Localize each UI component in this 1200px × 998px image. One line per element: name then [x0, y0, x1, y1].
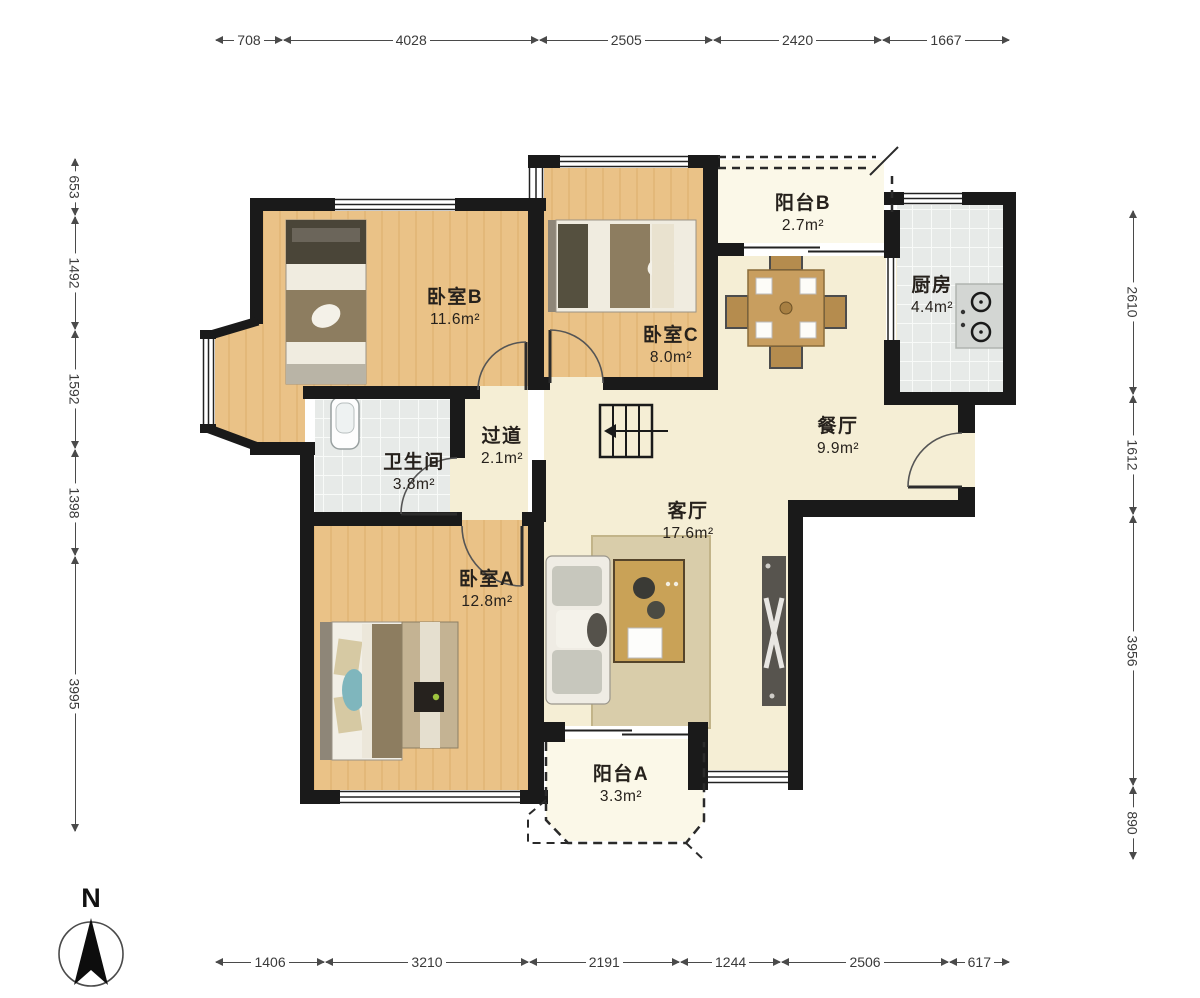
dimension-segment: 1612: [1122, 395, 1144, 515]
room-name: 卧室A: [459, 564, 515, 591]
double-bed-bedroom-a: [320, 622, 402, 760]
dimension-value: 2191: [586, 954, 623, 970]
compass: N: [50, 884, 132, 997]
dimension-value: 1244: [712, 954, 749, 970]
dimension-segment: 3956: [1122, 515, 1144, 787]
dimension-ruler-bottom: 1406 3210 2191 1244 2506 617: [215, 951, 1010, 973]
double-bed-bedroom-c: [548, 220, 696, 312]
dimension-value: 1592: [67, 370, 83, 409]
room-label-bedroom-c: 卧室C 8.0m²: [643, 320, 699, 367]
dimension-value: 1492: [67, 253, 83, 292]
room-name: 卧室B: [427, 282, 483, 309]
room-area: 4.4m²: [911, 299, 953, 317]
room-label-balcony-b: 阳台B 2.7m²: [775, 188, 831, 235]
room-name: 客厅: [662, 496, 713, 523]
window-living-bottom: [708, 770, 788, 784]
dimension-segment: 2191: [529, 951, 680, 973]
room-name: 卫生间: [383, 447, 445, 474]
room-label-balcony-a: 阳台A 3.3m²: [593, 759, 649, 806]
room-name: 过道: [481, 421, 523, 448]
dimension-value: 1398: [67, 483, 83, 522]
dimension-value: 1612: [1125, 435, 1141, 474]
dimension-segment: 708: [215, 29, 283, 51]
floor-plan-canvas: 卧室B 11.6m² 卧室C 8.0m² 阳台B 2.7m² 厨房 4.4m² …: [0, 0, 1200, 998]
room-label-hallway: 过道 2.1m²: [481, 421, 523, 468]
room-label-living: 客厅 17.6m²: [662, 496, 713, 543]
dimension-segment: 890: [1122, 786, 1144, 860]
floor-plan-drawing: [0, 0, 1200, 998]
dimension-segment: 2505: [539, 29, 713, 51]
dimension-value: 3210: [408, 954, 445, 970]
dimension-segment: 2610: [1122, 210, 1144, 395]
window-bedroom-a-bottom: [340, 790, 520, 804]
compass-north-label: N: [50, 884, 132, 912]
room-area: 3.8m²: [383, 476, 445, 494]
dimension-ruler-right: 2610 1612 3956 890: [1122, 210, 1144, 860]
room-area: 2.7m²: [775, 217, 831, 235]
dimension-value: 3995: [67, 674, 83, 713]
room-area: 17.6m²: [662, 525, 713, 543]
compass-icon: [50, 912, 132, 992]
room-area: 11.6m²: [427, 311, 483, 329]
window-corner-jog: [528, 168, 544, 198]
bathroom-sink: [331, 397, 359, 449]
dimension-ruler-top: 708 4028 2505 2420 1667: [215, 29, 1010, 51]
room-name: 厨房: [911, 270, 953, 297]
tv-cabinet: [762, 556, 786, 706]
room-area: 8.0m²: [643, 349, 699, 367]
room-name: 阳台B: [775, 188, 831, 215]
double-bed-bedroom-b: [286, 220, 366, 384]
dimension-value: 890: [1125, 808, 1141, 839]
dimension-value: 4028: [393, 32, 430, 48]
dimension-value: 2506: [846, 954, 883, 970]
room-label-dining: 餐厅 9.9m²: [817, 411, 859, 458]
room-area: 2.1m²: [481, 450, 523, 468]
room-name: 卧室C: [643, 320, 699, 347]
window-bedroom-b-top: [335, 198, 455, 211]
dimension-value: 617: [965, 954, 994, 970]
room-area: 12.8m²: [459, 593, 515, 611]
dimension-segment: 2506: [781, 951, 948, 973]
dimension-value: 2610: [1125, 283, 1141, 322]
dimension-segment: 1667: [882, 29, 1010, 51]
room-area: 9.9m²: [817, 440, 859, 458]
dimension-ruler-left: 653 1492 1592 1398 3995: [64, 158, 86, 832]
window-bedroom-c-top: [560, 155, 688, 168]
room-label-kitchen: 厨房 4.4m²: [911, 270, 953, 317]
dimension-value: 708: [234, 32, 263, 48]
coffee-table: [614, 560, 684, 662]
dimension-segment: 3210: [325, 951, 529, 973]
room-label-bedroom-a: 卧室A 12.8m²: [459, 564, 515, 611]
wardrobe-bedroom-a: [402, 622, 458, 748]
room-area: 3.3m²: [593, 788, 649, 806]
stove-cooktop: [956, 284, 1004, 348]
dimension-segment: 2420: [713, 29, 882, 51]
room-label-bedroom-b: 卧室B 11.6m²: [427, 282, 483, 329]
dimension-segment: 1492: [64, 216, 86, 329]
dimension-segment: 617: [949, 951, 1010, 973]
dimension-segment: 1244: [680, 951, 782, 973]
dimension-value: 2420: [779, 32, 816, 48]
dimension-segment: 1406: [215, 951, 325, 973]
bay-window-bedroom-b: [202, 339, 215, 424]
dimension-segment: 1592: [64, 330, 86, 450]
room-label-bathroom: 卫生间 3.8m²: [383, 447, 445, 494]
room-name: 阳台A: [593, 759, 649, 786]
room-name: 餐厅: [817, 411, 859, 438]
sliding-door-balcony-a: [565, 726, 688, 739]
window-kitchen-top: [904, 192, 962, 205]
dimension-segment: 3995: [64, 556, 86, 832]
glass-panel-kitchen-left: [886, 258, 896, 340]
dimension-value: 2505: [608, 32, 645, 48]
dimension-value: 1406: [251, 954, 288, 970]
sliding-door-balcony-b: [744, 243, 884, 256]
dimension-value: 653: [67, 172, 83, 203]
dimension-segment: 4028: [283, 29, 540, 51]
dimension-segment: 1398: [64, 449, 86, 556]
dimension-value: 1667: [927, 32, 964, 48]
dimension-value: 3956: [1125, 631, 1141, 670]
sofa: [546, 556, 610, 704]
dimension-segment: 653: [64, 158, 86, 216]
